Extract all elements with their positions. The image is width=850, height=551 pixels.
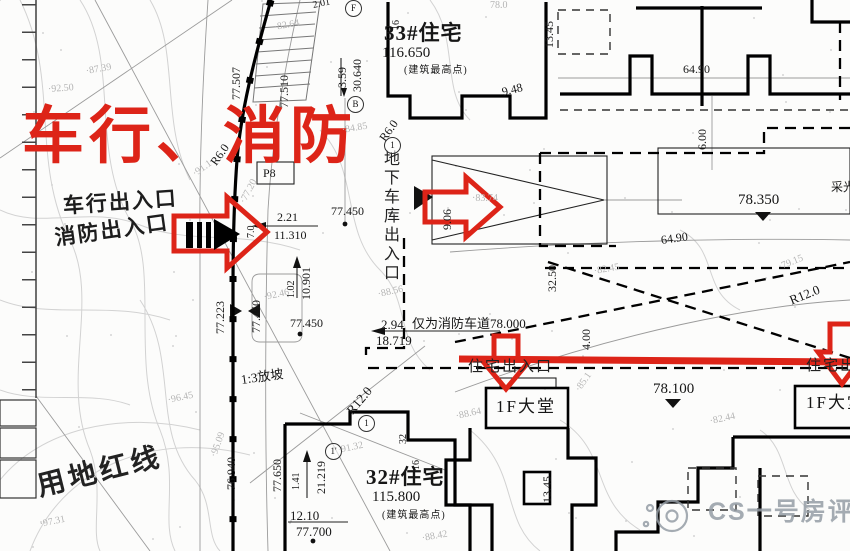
- contour-96-45: ·96.45: [167, 391, 194, 406]
- dim-4-00: 4.00: [580, 329, 592, 350]
- ref-circle-b: B: [347, 96, 364, 113]
- contour-87-39: ·87.39: [85, 63, 112, 77]
- contour-83-74: ·83.74: [472, 194, 498, 204]
- spot-78-350: 78.350: [738, 193, 779, 208]
- dim-2-21: 2.21: [277, 211, 298, 223]
- slope-note: 1:3放坡: [240, 367, 284, 386]
- residential-entrance-left: 住宅出入口: [468, 360, 553, 375]
- spot-77-450-a: 77.450: [331, 205, 364, 217]
- dim-9-48: 9.48: [501, 81, 524, 98]
- ref-circle-1-prime: 1': [325, 443, 342, 460]
- site-plan: 车行、消防车行出入口消防出入口33#住宅116.650(建筑最高点)32#住宅1…: [0, 0, 850, 551]
- dim-32: 32: [399, 434, 409, 444]
- dim-32-50: 32.50: [546, 265, 558, 292]
- contour-77-20: ·77.20: [239, 178, 260, 206]
- dim-13-45-top: 13.45: [543, 21, 555, 48]
- ref-circle-f: F: [345, 0, 362, 17]
- contour-92-50: ·92.50: [48, 83, 74, 95]
- spot-77-450-road: 77.450: [250, 300, 262, 333]
- land-red-line-label: 用地红线: [35, 443, 166, 501]
- contour-82-44: ·82.44: [709, 412, 736, 427]
- spot-77-700: 77.700: [296, 525, 332, 538]
- dim-12-10: 12.10: [290, 509, 319, 522]
- contour-84-85: ·84.85: [341, 122, 368, 136]
- dim-3-59: 3.59: [336, 67, 348, 88]
- dim-16-top: 16: [392, 20, 402, 30]
- dim-1-02: 1.02: [287, 281, 297, 299]
- label-daylight-well: 采光: [831, 181, 850, 193]
- dim-21-219: 21.219: [315, 461, 327, 494]
- fire-lane-note: 仅为消防车道78.000: [412, 317, 526, 330]
- contour-88-42: ·88.42: [421, 530, 448, 544]
- dim-2-94: 2.94: [381, 318, 404, 331]
- dim-2-01: 2.01: [312, 0, 331, 11]
- dim-30-640: 30.640: [351, 59, 363, 92]
- building-33-note: (建筑最高点): [404, 66, 468, 76]
- headline-vehicle-fire: 车行、消防: [22, 106, 357, 168]
- note-fire-entrance: 消防出入口: [54, 212, 171, 249]
- radius-r12-left: R12.0: [344, 384, 374, 416]
- contour-79-15: ·79.15: [777, 254, 805, 273]
- contour-95-09: ·95.09: [209, 431, 227, 459]
- dim-10-901: 10.901: [300, 267, 312, 300]
- dim-1-41: 1.41: [292, 473, 302, 491]
- dim-6-00: 6.00: [696, 129, 708, 150]
- spot-77-450-b: 77.450: [290, 317, 323, 329]
- dim-77-507: 77.507: [230, 67, 242, 100]
- lobby-right-label: 1F大堂: [806, 394, 850, 411]
- building-33-elevation: 116.650: [382, 46, 430, 61]
- dim-7-0: 7.0: [247, 226, 257, 239]
- contour-78-0: 78.0: [490, 1, 508, 11]
- dim-77-510: 77.510: [278, 75, 290, 108]
- spot-77-650: 77.650: [271, 459, 283, 492]
- radius-r12-right: R12.0: [788, 283, 822, 307]
- lobby-left-label: 1F大堂: [496, 398, 556, 415]
- contour-88-64: ·88.64: [455, 407, 482, 422]
- dim-64-90-top: 64.90: [683, 63, 710, 75]
- dim-11-310: 11.310: [274, 229, 307, 241]
- spot-78-100: 78.100: [653, 382, 694, 397]
- building-32-note: (建筑最高点): [382, 511, 446, 521]
- spot-76-940: 76.940: [225, 457, 237, 490]
- dim-18-719: 18.719: [376, 334, 412, 347]
- contour-97-31: ·97.31: [39, 515, 66, 530]
- residential-entrance-right: 住宅出入口: [806, 359, 850, 374]
- ref-circle-1-top: 1: [384, 137, 401, 154]
- dim-64-90-mid: 64.90: [660, 230, 688, 246]
- ref-circle-1-bottom: 1: [358, 415, 375, 432]
- building-32-title: 32#住宅: [366, 467, 445, 488]
- watermark-text: CS一号房评: [708, 500, 850, 525]
- dim-9-06: 9.06: [441, 209, 453, 230]
- dim-16-bottom: 16: [412, 460, 422, 470]
- garage-entrance-label: 地下车库出入口: [381, 150, 397, 302]
- label-p8: P8: [263, 167, 276, 179]
- spot-77-223: 77.223: [214, 301, 226, 334]
- contour-82-64: ·82.64: [273, 19, 300, 33]
- contour-85-1: ·85.1: [574, 371, 594, 394]
- labels-layer: 车行、消防车行出入口消防出入口33#住宅116.650(建筑最高点)32#住宅1…: [0, 0, 850, 551]
- dim-13-45-bottom: 13.45: [541, 476, 553, 503]
- building-32-elevation: 115.800: [372, 490, 420, 505]
- contour-82-45: ·82.45: [593, 263, 620, 277]
